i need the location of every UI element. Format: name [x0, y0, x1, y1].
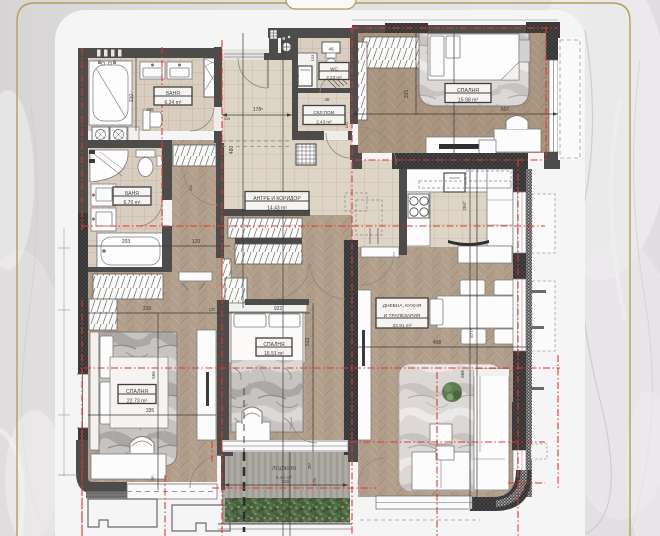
svg-text:6.70 m²: 6.70 m²	[124, 200, 141, 206]
svg-text:203: 203	[122, 239, 131, 245]
svg-text:153: 153	[310, 54, 315, 61]
svg-text:ДНЕВНА, КУХНЯ: ДНЕВНА, КУХНЯ	[383, 303, 422, 309]
svg-text:32.91 m²: 32.91 m²	[393, 323, 412, 329]
svg-text:335: 335	[143, 306, 152, 312]
svg-text:16.51 m²: 16.51 m²	[264, 351, 284, 357]
svg-text:178⁵: 178⁵	[253, 107, 263, 113]
svg-text:210: 210	[189, 185, 193, 191]
svg-text:5.40 m²: 5.40 m²	[276, 475, 293, 481]
svg-text:46: 46	[325, 97, 330, 102]
svg-text:210: 210	[129, 94, 135, 103]
svg-text:2.43 m²: 2.43 m²	[316, 120, 332, 125]
svg-text:877⁵: 877⁵	[469, 328, 474, 338]
svg-text:120: 120	[192, 239, 201, 245]
svg-text:668: 668	[460, 370, 465, 378]
svg-text:ЛОДЖИЯ: ЛОДЖИЯ	[272, 466, 296, 472]
svg-text:335: 335	[146, 107, 154, 112]
svg-text:25⁵: 25⁵	[150, 475, 155, 481]
svg-text:507: 507	[501, 107, 510, 113]
svg-text:15.98 m²: 15.98 m²	[458, 98, 479, 104]
svg-text:922: 922	[274, 306, 283, 312]
svg-text:46: 46	[328, 47, 334, 53]
svg-text:310: 310	[224, 117, 230, 121]
svg-text:315: 315	[404, 90, 410, 99]
svg-text:556: 556	[151, 371, 156, 379]
svg-text:6.24 m²: 6.24 m²	[165, 100, 182, 106]
svg-text:175: 175	[312, 478, 317, 486]
svg-text:513: 513	[305, 338, 311, 347]
svg-text:2.23 m²: 2.23 m²	[326, 75, 342, 80]
svg-text:408: 408	[433, 340, 442, 346]
svg-text:22.73 m²: 22.73 m²	[127, 399, 148, 405]
svg-text:335: 335	[146, 408, 155, 414]
svg-text:204⁰: 204⁰	[462, 201, 467, 211]
svg-text:14.43 m²: 14.43 m²	[267, 206, 287, 212]
svg-text:СКЛ.ПОМ: СКЛ.ПОМ	[314, 110, 335, 115]
svg-text:25³: 25³	[307, 462, 312, 469]
svg-text:12⁵: 12⁵	[209, 307, 216, 312]
